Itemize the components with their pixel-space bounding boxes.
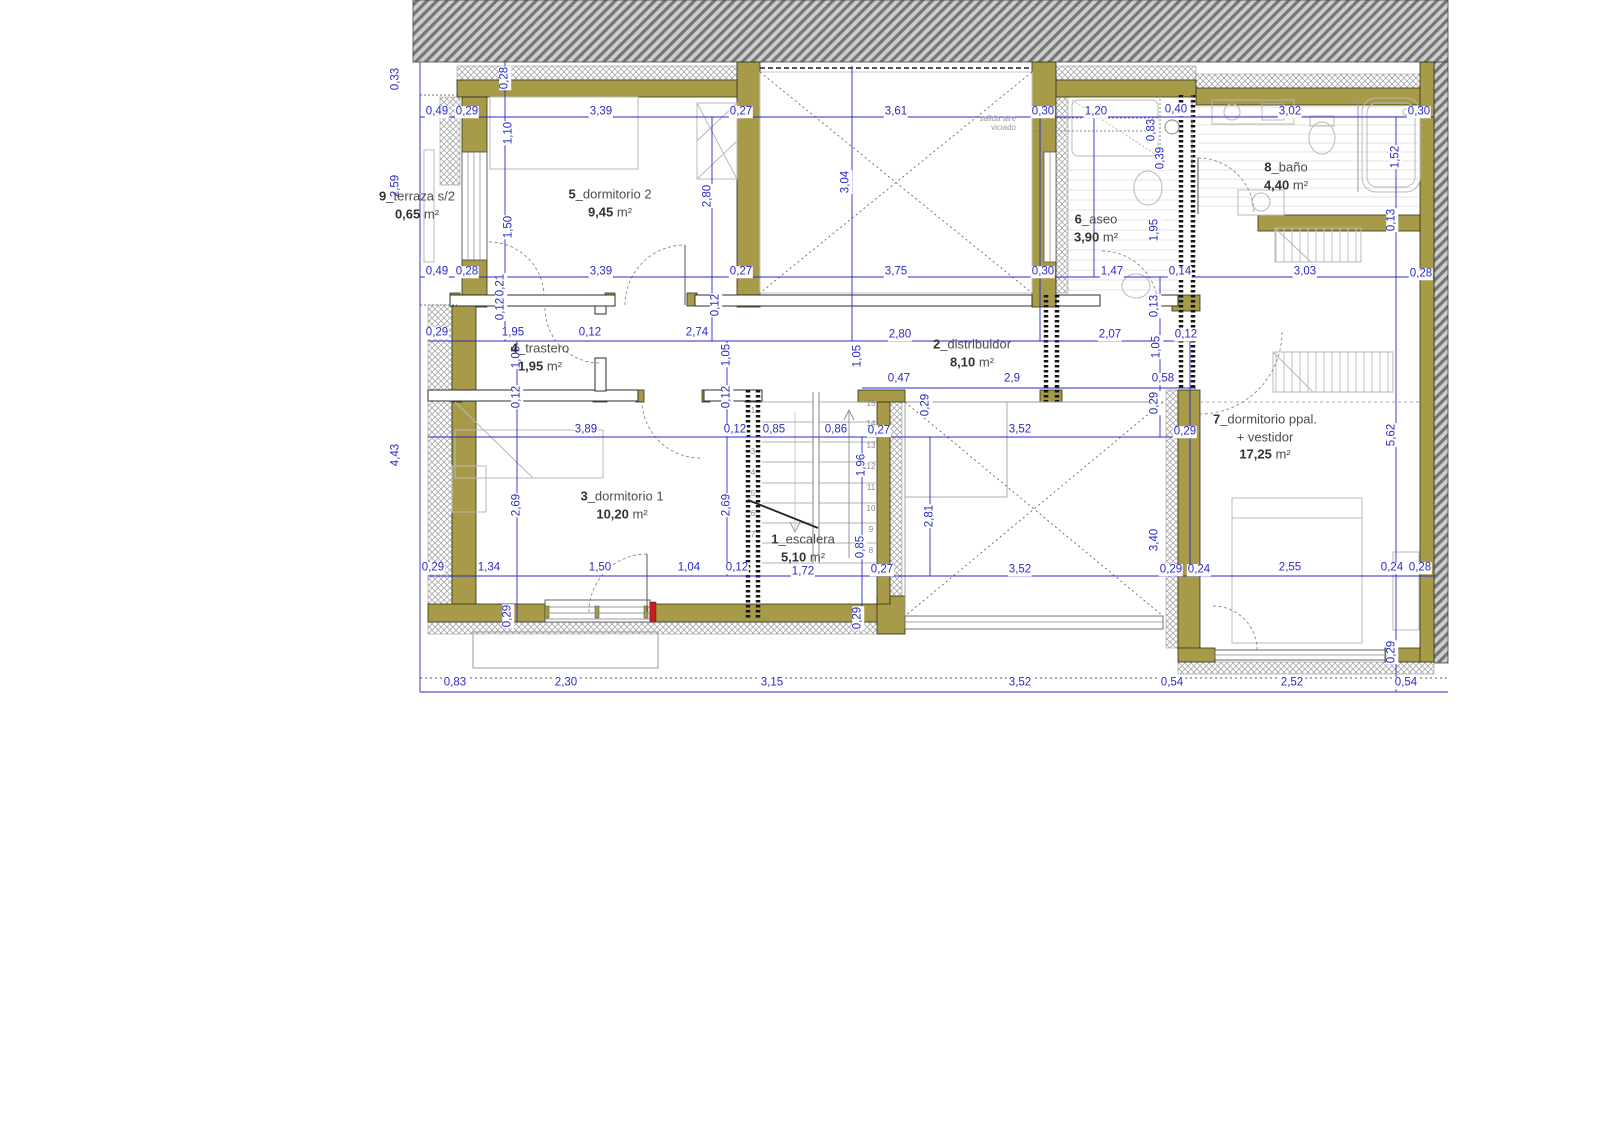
dimension-label: 0,29 (1159, 564, 1183, 576)
room-label-text: m² (975, 354, 994, 369)
dimension-label: 0,21 (495, 273, 507, 297)
red-highlight-element (650, 602, 656, 622)
room-label-bold: 8,10 (950, 354, 975, 369)
dimension-label: 0,30 (1407, 106, 1431, 118)
room-label-dormitorio-ppal: 7_dormitorio ppal.+ vestidor17,25 m² (1213, 411, 1317, 464)
dimension-label: 0,24 (1380, 562, 1404, 574)
dimension-label: 0,29 (425, 327, 449, 339)
stair-step-number: 14 (867, 420, 876, 428)
dimension-label: 2,9 (1003, 373, 1021, 385)
dimension-label: 0,47 (887, 373, 911, 385)
dimension-label: 3,40 (1149, 528, 1161, 552)
room-label-text: _dormitorio 1 (588, 488, 664, 503)
dimension-label: 0,30 (1031, 266, 1055, 278)
dimension-label: 0,29 (1173, 426, 1197, 438)
room-label-text: m² (543, 358, 562, 373)
stair-step-number: 7 (751, 531, 755, 539)
room-label-dormitorio-2: 5_dormitorio 29,45 m² (568, 185, 651, 220)
dimension-label: 0,54 (1394, 677, 1418, 689)
stair-step-number: 12 (867, 463, 876, 471)
dimension-label: 3,52 (1008, 564, 1032, 576)
room-label-bold: 8 (1264, 159, 1271, 174)
room-label-bold: 1,95 (518, 358, 543, 373)
dimension-label: 2,74 (685, 327, 709, 339)
stair-step-number: 8 (869, 547, 873, 555)
dimension-label: 0,12 (511, 385, 523, 409)
room-label-text: + vestidor (1237, 429, 1294, 444)
dimension-label: 0,12 (1174, 329, 1198, 341)
dimension-label: 1,05 (852, 344, 864, 368)
room-label-text: m² (806, 549, 825, 564)
dimension-label: 1,10 (503, 121, 515, 145)
dimension-label: 1,05 (721, 343, 733, 367)
room-label-text: _distribuidor (940, 336, 1011, 351)
dimension-label: 0,12 (725, 562, 749, 574)
room-label-bold: 6 (1075, 211, 1082, 226)
room-label-terraza: 9_terraza s/20,65 m² (379, 187, 455, 222)
room-label-text: m² (420, 206, 439, 221)
dimension-label: 0,28 (1409, 268, 1433, 280)
room-label-bold: 4,40 (1264, 177, 1289, 192)
dimension-label: 0,13 (1386, 208, 1398, 232)
dimension-label: 5,62 (1386, 423, 1398, 447)
dimension-label: 0,33 (390, 67, 402, 91)
dimension-label: 1,95 (501, 327, 525, 339)
dimension-label: 3,39 (589, 106, 613, 118)
room-label-bold: 9,45 (588, 204, 613, 219)
dimension-label: 1,50 (503, 215, 515, 239)
dimension-label: 0,29 (455, 106, 479, 118)
dimension-label: 1,05 (1151, 335, 1163, 359)
dimension-label: 0,12 (710, 293, 722, 317)
dimension-label: 0,49 (425, 106, 449, 118)
dimension-label: 2,80 (888, 329, 912, 341)
room-label-text: _aseo (1082, 211, 1117, 226)
room-label-text: m² (1289, 177, 1308, 192)
dimension-label: 0,24 (1187, 564, 1211, 576)
room-label-text: m² (1272, 447, 1291, 462)
room-label-text: _dormitorio 2 (576, 186, 652, 201)
dimension-label: 0,54 (1160, 677, 1184, 689)
room-label-bold: 10,20 (596, 506, 629, 521)
dimension-label: 0,86 (824, 424, 848, 436)
dimension-label: 1,04 (677, 562, 701, 574)
dimension-label: 0,12 (721, 385, 733, 409)
dimension-label: 1,47 (1100, 266, 1124, 278)
room-label-text: _baño (1272, 159, 1308, 174)
dimension-label: 0,30 (1031, 106, 1055, 118)
dimension-label: 2,30 (554, 677, 578, 689)
room-label-bold: 3,90 (1074, 229, 1099, 244)
dimension-label: 0,12 (495, 297, 507, 321)
bathroom-floor-tiles (1068, 98, 1418, 290)
dimension-label: 0,85 (855, 535, 867, 559)
stair-step-number: 11 (867, 484, 875, 492)
room-label-bano: 8_baño4,40 m² (1264, 158, 1308, 193)
dimension-label: 3,89 (574, 424, 598, 436)
dimension-label: 1,95 (1149, 218, 1161, 242)
dimension-label: 2,07 (1098, 329, 1122, 341)
dimension-label: 3,39 (589, 266, 613, 278)
room-label-aseo: 6_aseo3,90 m² (1074, 210, 1118, 245)
dimension-label: 0,29 (1386, 640, 1398, 664)
room-label-bold: 0,65 (395, 206, 420, 221)
room-label-text: m² (629, 506, 648, 521)
dimension-label: 0,83 (443, 677, 467, 689)
dimension-label: 3,52 (1008, 424, 1032, 436)
dimension-label: 4,43 (390, 443, 402, 467)
stair-step-number: 5 (751, 490, 755, 498)
dimension-label: 0,28 (1408, 562, 1432, 574)
dimension-label: 1,34 (477, 562, 501, 574)
dimension-label: 0,27 (729, 106, 753, 118)
floor-plan-canvas: 0,490,293,390,273,610,301,200,403,020,30… (0, 0, 1600, 1131)
dimension-label: 0,85 (762, 424, 786, 436)
room-label-dormitorio-1: 3_dormitorio 110,20 m² (580, 487, 663, 522)
room-label-text: m² (613, 204, 632, 219)
stair-step-number: 10 (867, 505, 876, 513)
dimension-label: 3,52 (1008, 677, 1032, 689)
dimension-label: 2,55 (1278, 562, 1302, 574)
room-label-bold: 17,25 (1239, 447, 1272, 462)
annotation-text: salida aire (980, 115, 1016, 123)
dimension-label: 0,39 (1155, 146, 1167, 170)
dimension-label: 0,12 (723, 424, 747, 436)
room-label-text: _escalera (778, 531, 834, 546)
dimension-label: 0,12 (578, 327, 602, 339)
room-label-trastero: 4_trastero1,95 m² (511, 339, 570, 374)
dimension-label: 1,20 (1084, 106, 1108, 118)
dimension-label: 0,14 (1168, 266, 1192, 278)
dimension-label: 0,28 (455, 266, 479, 278)
dimension-label: 1,52 (1390, 145, 1402, 169)
room-label-bold: 5,10 (781, 549, 806, 564)
dimension-label: 2,69 (511, 493, 523, 517)
dimension-label: 0,28 (499, 66, 511, 90)
dimension-label: 0,27 (870, 564, 894, 576)
stair-step-number: 3 (751, 448, 755, 456)
stair-step-number: 1 (751, 407, 755, 415)
stair-step-number: 4 (751, 469, 755, 477)
dimension-label: 0,29 (852, 606, 864, 630)
dimension-label: 0,29 (1149, 391, 1161, 415)
dimension-label: 0,83 (1146, 118, 1158, 142)
dimension-label: 0,29 (421, 562, 445, 574)
dimension-label: 0,29 (502, 604, 514, 628)
dimension-label: 1,50 (588, 562, 612, 574)
room-label-text: _trastero (518, 340, 569, 355)
stair-step-number: 13 (867, 442, 876, 450)
dimension-label: 0,13 (1149, 294, 1161, 318)
dimension-label: 2,52 (1280, 677, 1304, 689)
dimension-label: 0,49 (425, 266, 449, 278)
room-label-text: m² (1099, 229, 1118, 244)
annotation-text: viciado (991, 124, 1016, 132)
dimension-label: 0,29 (920, 393, 932, 417)
dimension-label: 1,72 (791, 566, 815, 578)
dimension-label: 3,75 (884, 266, 908, 278)
dimension-label: 2,81 (924, 504, 936, 528)
dimension-label: 3,61 (884, 106, 908, 118)
stair-step-number: 6 (751, 510, 755, 518)
dimension-label: 2,69 (721, 493, 733, 517)
room-label-text: _terraza s/2 (386, 188, 455, 203)
dimension-label: 3,15 (760, 677, 784, 689)
stair-step-number: 15 (867, 400, 876, 408)
room-label-distribuidor: 2_distribuidor8,10 m² (933, 335, 1011, 370)
dimension-label: 0,27 (729, 266, 753, 278)
room-label-escalera: 1_escalera5,10 m² (771, 530, 835, 565)
dimension-label: 3,03 (1293, 266, 1317, 278)
room-label-text: _dormitorio ppal. (1220, 412, 1317, 427)
dimension-label: 0,40 (1164, 104, 1188, 116)
dimension-label: 0,58 (1151, 373, 1175, 385)
stair-step-number: 9 (869, 526, 873, 534)
dimension-label: 3,02 (1278, 106, 1302, 118)
dimension-label: 3,04 (840, 170, 852, 194)
dimension-label: 2,80 (702, 184, 714, 208)
